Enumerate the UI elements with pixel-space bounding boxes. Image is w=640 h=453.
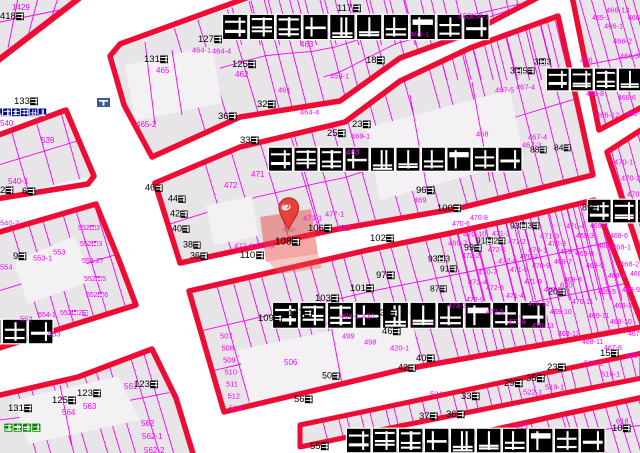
svg-text:472-6: 472-6 <box>486 285 504 292</box>
svg-text:552: 552 <box>84 276 96 283</box>
svg-text:37: 37 <box>419 411 430 422</box>
svg-text:470-2: 470-2 <box>621 173 640 182</box>
svg-text:466-4: 466-4 <box>628 15 640 22</box>
svg-text:507: 507 <box>220 331 233 340</box>
svg-text:465-1: 465-1 <box>592 15 610 22</box>
svg-text:471-1: 471-1 <box>492 231 510 238</box>
svg-text:524: 524 <box>430 389 443 398</box>
svg-text:93: 93 <box>428 253 438 263</box>
svg-text:10: 10 <box>612 423 623 434</box>
svg-text:32: 32 <box>257 99 268 110</box>
svg-text:468-10: 468-10 <box>610 319 632 326</box>
svg-text:470-6: 470-6 <box>452 221 470 228</box>
svg-text:553: 553 <box>48 329 61 338</box>
svg-text:477-9: 477-9 <box>255 241 274 250</box>
svg-text:25: 25 <box>327 128 338 139</box>
svg-text:467-5: 467-5 <box>495 86 514 95</box>
svg-text:540: 540 <box>0 119 14 128</box>
svg-text:3: 3 <box>510 65 515 75</box>
svg-text:5: 5 <box>523 65 528 75</box>
svg-text:469-4: 469-4 <box>590 223 608 230</box>
svg-text:469-11: 469-11 <box>588 313 609 320</box>
svg-text:468-2: 468-2 <box>620 259 639 268</box>
svg-text:473-2: 473-2 <box>448 303 466 310</box>
svg-text:466-2: 466-2 <box>613 37 632 46</box>
svg-text:552: 552 <box>20 314 33 323</box>
svg-text:125: 125 <box>232 59 248 70</box>
svg-text:55: 55 <box>310 441 321 452</box>
svg-text:103: 103 <box>315 293 331 304</box>
svg-text:466-13: 466-13 <box>606 5 629 14</box>
svg-text:467-4: 467-4 <box>516 83 535 92</box>
svg-text:117: 117 <box>337 3 352 14</box>
svg-text:471-6: 471-6 <box>510 267 528 274</box>
svg-text:509: 509 <box>223 355 236 364</box>
svg-text:508: 508 <box>222 343 235 352</box>
svg-text:554: 554 <box>0 262 13 271</box>
svg-text:472-9: 472-9 <box>466 297 484 304</box>
svg-text:469-8: 469-8 <box>576 251 594 258</box>
svg-text:468-9: 468-9 <box>622 287 640 294</box>
svg-text:123: 123 <box>134 379 150 390</box>
svg-text:42: 42 <box>398 363 408 373</box>
svg-text:466-3: 466-3 <box>620 52 639 61</box>
svg-text:469-10: 469-10 <box>550 309 572 316</box>
svg-text:6: 6 <box>22 186 27 197</box>
svg-text:110: 110 <box>240 250 255 261</box>
svg-text:519-1: 519-1 <box>545 382 564 391</box>
svg-text:472-1: 472-1 <box>488 247 506 254</box>
svg-text:3: 3 <box>547 56 552 66</box>
svg-text:50: 50 <box>322 371 332 381</box>
svg-text:511: 511 <box>226 379 238 388</box>
svg-text:467-1: 467-1 <box>628 331 640 338</box>
svg-text:9: 9 <box>13 251 18 262</box>
svg-text:469-7: 469-7 <box>554 259 572 266</box>
svg-text:471: 471 <box>251 170 265 179</box>
svg-text:471-2: 471-2 <box>508 239 526 246</box>
svg-text:468-3: 468-3 <box>614 303 632 310</box>
svg-text:87: 87 <box>430 283 440 293</box>
svg-text:469-1: 469-1 <box>351 131 370 140</box>
svg-text:468: 468 <box>630 271 640 278</box>
svg-text:3: 3 <box>534 56 539 66</box>
svg-text:539: 539 <box>41 136 55 145</box>
svg-text:127: 127 <box>198 34 214 45</box>
svg-text:470-3: 470-3 <box>627 189 640 198</box>
svg-text:469-12: 469-12 <box>558 331 580 338</box>
svg-text:554-1: 554-1 <box>38 312 56 319</box>
svg-text:2: 2 <box>0 185 5 196</box>
svg-text:467-6: 467-6 <box>604 345 622 352</box>
svg-text:470-8: 470-8 <box>470 215 488 222</box>
svg-text:521: 521 <box>516 421 529 430</box>
svg-text:46: 46 <box>382 326 393 337</box>
svg-text:2: 2 <box>96 225 100 232</box>
svg-text:464-1: 464-1 <box>192 46 211 55</box>
svg-text:477-1: 477-1 <box>325 209 344 218</box>
svg-text:513: 513 <box>229 403 242 412</box>
svg-text:97: 97 <box>376 270 387 281</box>
svg-text:562-1: 562-1 <box>142 432 163 441</box>
svg-text:472-5: 472-5 <box>486 309 504 316</box>
svg-text:23: 23 <box>352 119 363 130</box>
svg-text:56: 56 <box>294 394 305 405</box>
svg-text:466: 466 <box>580 56 593 65</box>
svg-text:40: 40 <box>416 353 427 364</box>
svg-text:465: 465 <box>156 66 170 75</box>
svg-text:470-9: 470-9 <box>532 263 550 270</box>
svg-text:466-12: 466-12 <box>596 111 619 120</box>
svg-text:420-1: 420-1 <box>390 343 409 352</box>
svg-text:540-2: 540-2 <box>0 218 19 227</box>
svg-text:466-7: 466-7 <box>626 111 640 118</box>
svg-text:35: 35 <box>526 373 537 384</box>
svg-text:88: 88 <box>530 144 540 154</box>
svg-text:23: 23 <box>547 362 558 373</box>
svg-text:472-4: 472-4 <box>468 277 487 286</box>
svg-text:89: 89 <box>582 203 592 213</box>
svg-text:469-3: 469-3 <box>576 233 594 240</box>
svg-text:410: 410 <box>362 311 375 320</box>
svg-text:471-8: 471-8 <box>508 319 526 326</box>
svg-text:3: 3 <box>445 253 450 263</box>
svg-text:552: 552 <box>86 292 98 299</box>
svg-text:563: 563 <box>83 402 97 411</box>
svg-text:93: 93 <box>510 220 520 230</box>
svg-text:84: 84 <box>554 142 564 152</box>
svg-text:462: 462 <box>235 70 249 79</box>
svg-text:44: 44 <box>168 194 178 204</box>
svg-text:125: 125 <box>52 395 68 406</box>
svg-text:465-2: 465-2 <box>136 120 157 129</box>
svg-text:6: 6 <box>104 292 108 299</box>
svg-text:472: 472 <box>224 181 238 190</box>
svg-text:107: 107 <box>288 308 304 319</box>
svg-text:470-5: 470-5 <box>544 287 562 294</box>
svg-text:540-1: 540-1 <box>8 177 29 186</box>
svg-text:131: 131 <box>144 54 160 65</box>
svg-text:463: 463 <box>300 40 314 49</box>
svg-text:91: 91 <box>440 263 450 273</box>
svg-text:469-2: 469-2 <box>448 238 467 247</box>
svg-text:470-3: 470-3 <box>548 241 566 248</box>
svg-text:473-1: 473-1 <box>303 213 322 222</box>
svg-text:468-5: 468-5 <box>598 243 616 250</box>
svg-text:458-1: 458-1 <box>470 11 489 20</box>
svg-text:470-12: 470-12 <box>528 301 550 308</box>
svg-text:512: 512 <box>228 391 241 400</box>
svg-text:3: 3 <box>98 241 102 248</box>
svg-text:468-8: 468-8 <box>608 273 626 280</box>
svg-text:468-11: 468-11 <box>582 339 603 346</box>
svg-text:38: 38 <box>183 240 193 250</box>
svg-text:469-5: 469-5 <box>598 289 616 296</box>
svg-text:517-1: 517-1 <box>584 358 603 367</box>
svg-text:5: 5 <box>102 276 106 283</box>
svg-text:510: 510 <box>225 367 238 376</box>
svg-text:33: 33 <box>240 135 251 146</box>
svg-text:516-1: 516-1 <box>601 369 620 378</box>
svg-text:553-27: 553-27 <box>82 258 104 265</box>
svg-text:470-10: 470-10 <box>463 229 486 238</box>
svg-text:553: 553 <box>53 247 66 256</box>
svg-text:552: 552 <box>60 310 72 317</box>
svg-text:498: 498 <box>364 337 377 346</box>
svg-text:464-4: 464-4 <box>300 108 319 117</box>
svg-text:470-13: 470-13 <box>532 323 554 330</box>
svg-text:473: 473 <box>337 224 351 233</box>
svg-text:470-1: 470-1 <box>614 157 633 166</box>
svg-text:466-1: 466-1 <box>604 21 623 30</box>
svg-text:564: 564 <box>62 408 76 417</box>
svg-text:552: 552 <box>80 241 92 248</box>
svg-text:477-8: 477-8 <box>234 241 253 250</box>
svg-text:468-6: 468-6 <box>610 233 628 240</box>
svg-text:36: 36 <box>218 111 229 122</box>
svg-text:469-6: 469-6 <box>564 277 582 284</box>
svg-text:18: 18 <box>366 55 377 66</box>
svg-text:106: 106 <box>308 223 324 234</box>
svg-text:562: 562 <box>141 419 155 428</box>
svg-text:108: 108 <box>275 237 292 248</box>
svg-text:471-9: 471-9 <box>524 279 542 286</box>
svg-text:418: 418 <box>0 11 16 22</box>
svg-text:2: 2 <box>78 310 82 317</box>
svg-text:464-4: 464-4 <box>212 47 231 56</box>
svg-text:466-8: 466-8 <box>586 91 604 98</box>
svg-text:42: 42 <box>170 209 180 219</box>
svg-text:3: 3 <box>527 220 532 230</box>
svg-text:472-8: 472-8 <box>498 256 517 265</box>
svg-text:36: 36 <box>380 308 390 318</box>
svg-text:499: 499 <box>342 331 355 340</box>
svg-text:470-7: 470-7 <box>478 267 497 276</box>
svg-text:40: 40 <box>172 224 182 234</box>
svg-text:470-2: 470-2 <box>520 254 538 261</box>
svg-text:552: 552 <box>78 225 90 232</box>
svg-text:36: 36 <box>446 409 457 420</box>
svg-text:470-4: 470-4 <box>566 221 585 230</box>
svg-text:469-9: 469-9 <box>586 263 604 270</box>
svg-text:469: 469 <box>414 195 427 204</box>
svg-text:459-1: 459-1 <box>330 72 349 81</box>
svg-text:461: 461 <box>278 86 291 95</box>
svg-text:46: 46 <box>145 183 155 193</box>
svg-text:101: 101 <box>350 283 366 294</box>
svg-text:404-1: 404-1 <box>340 311 359 320</box>
svg-text:36: 36 <box>190 251 200 261</box>
svg-text:461-1: 461-1 <box>410 30 429 39</box>
svg-text:133: 133 <box>14 96 30 107</box>
svg-text:100: 100 <box>437 203 453 214</box>
svg-text:522-1: 522-1 <box>523 387 542 396</box>
svg-text:466-6: 466-6 <box>618 95 636 102</box>
svg-text:466-5: 466-5 <box>626 353 640 360</box>
svg-text:102: 102 <box>370 233 386 244</box>
svg-text:562-2: 562-2 <box>144 446 165 453</box>
svg-text:468: 468 <box>346 148 360 157</box>
svg-text:471-3: 471-3 <box>540 231 559 240</box>
svg-text:29: 29 <box>504 378 515 389</box>
svg-text:468: 468 <box>476 129 489 138</box>
svg-text:553-1: 553-1 <box>33 253 52 262</box>
svg-text:123: 123 <box>77 388 93 399</box>
svg-text:131: 131 <box>8 403 24 414</box>
svg-text:506: 506 <box>284 358 298 367</box>
svg-text:471-4: 471-4 <box>506 293 524 300</box>
svg-text:33: 33 <box>461 391 472 402</box>
svg-text:472-2: 472-2 <box>462 253 480 260</box>
svg-text:470-11: 470-11 <box>572 299 593 306</box>
svg-text:109: 109 <box>258 313 274 324</box>
